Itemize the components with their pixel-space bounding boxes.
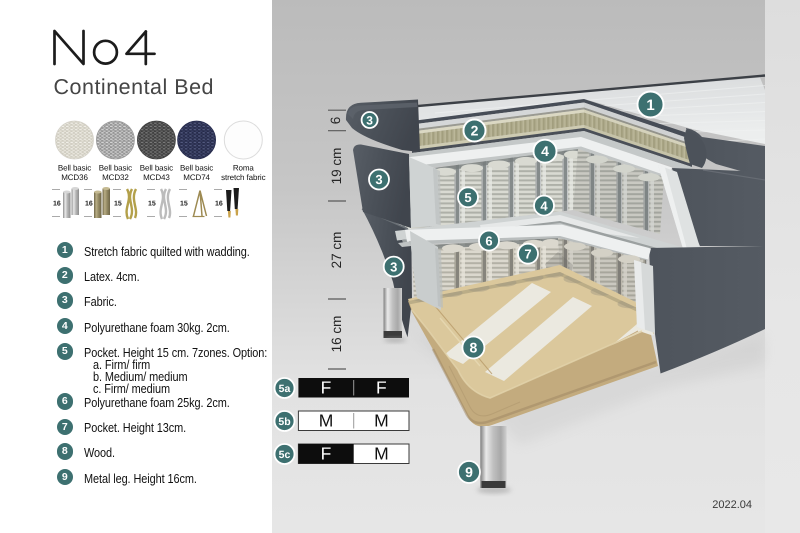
svg-text:5b: 5b [278,416,290,428]
svg-text:27 cm: 27 cm [329,232,344,269]
svg-text:F: F [321,444,332,464]
svg-text:M: M [374,444,389,464]
svg-text:M: M [319,411,334,431]
svg-text:5a: 5a [279,383,291,395]
svg-text:3: 3 [390,259,397,274]
svg-text:6: 6 [328,117,343,125]
svg-text:4: 4 [540,198,548,213]
svg-text:7: 7 [524,246,531,261]
svg-text:19 cm: 19 cm [329,148,344,185]
svg-text:1: 1 [646,97,654,114]
svg-text:M: M [374,411,389,431]
svg-text:5c: 5c [279,449,291,461]
svg-text:16 cm: 16 cm [329,316,344,353]
svg-text:5: 5 [464,190,471,205]
svg-text:F: F [376,378,387,398]
svg-text:4: 4 [541,143,549,159]
svg-text:2022.04: 2022.04 [712,499,752,511]
svg-text:9: 9 [465,464,473,480]
svg-text:8: 8 [470,340,478,356]
svg-text:6: 6 [485,233,492,248]
svg-text:F: F [321,378,332,398]
svg-text:2: 2 [471,123,479,139]
svg-text:3: 3 [366,114,373,128]
svg-text:3: 3 [375,172,382,187]
